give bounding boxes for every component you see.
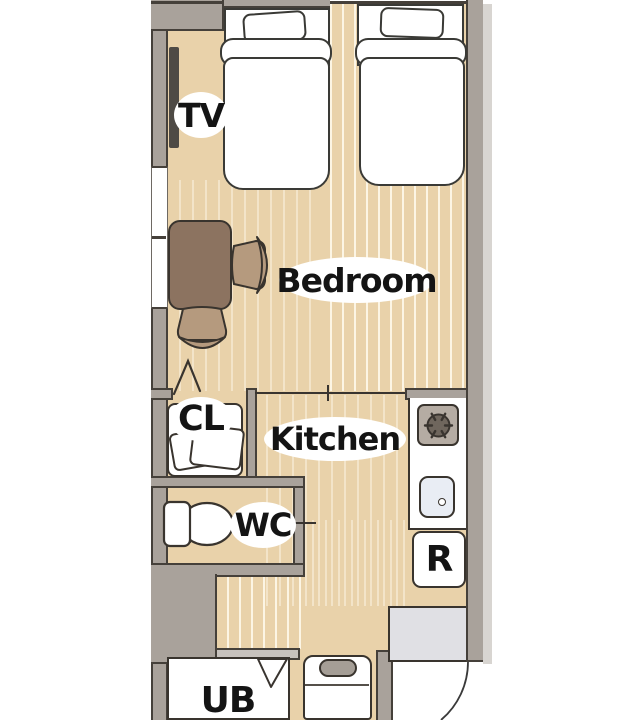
wall-closet-stub [151,388,173,400]
kitchen-sink [419,476,455,518]
refrigerator: R [412,531,466,588]
floor-grain-entry [301,520,405,606]
sink-drain [438,498,446,506]
unit-bath-label: UB [169,683,287,719]
wall-wc-top [151,476,305,488]
unit-bath: UB [167,657,290,720]
wall-top-left-block [151,0,224,31]
refrigerator-label: R [426,542,453,578]
washer-panel [319,659,357,677]
wall-shadow [483,4,492,664]
floor-grain-hallway [217,577,301,649]
window [151,166,168,309]
closet-label: CL [169,397,233,441]
tv-label: TV [174,92,228,138]
bed-1-duvet [223,57,330,190]
washing-machine [303,655,372,720]
kitchen-label: Kitchen [264,417,406,461]
bed-2-duvet [359,57,465,186]
entry-door-arc [441,662,468,720]
window-mullion [152,236,166,239]
bed-1-head-wall [224,0,330,8]
wall-bottom-left-block [151,574,217,664]
washer-line [305,684,369,686]
bed-2-pillow [379,7,444,39]
bedroom-label: Bedroom [279,257,434,303]
floor-plan: R UB [0,0,633,720]
wall-closet-kitchen [246,388,257,478]
stove [417,404,459,446]
dining-table [168,220,232,310]
wall-right [466,0,483,662]
wc-label: WC [230,502,296,548]
entry-tile [388,606,466,662]
